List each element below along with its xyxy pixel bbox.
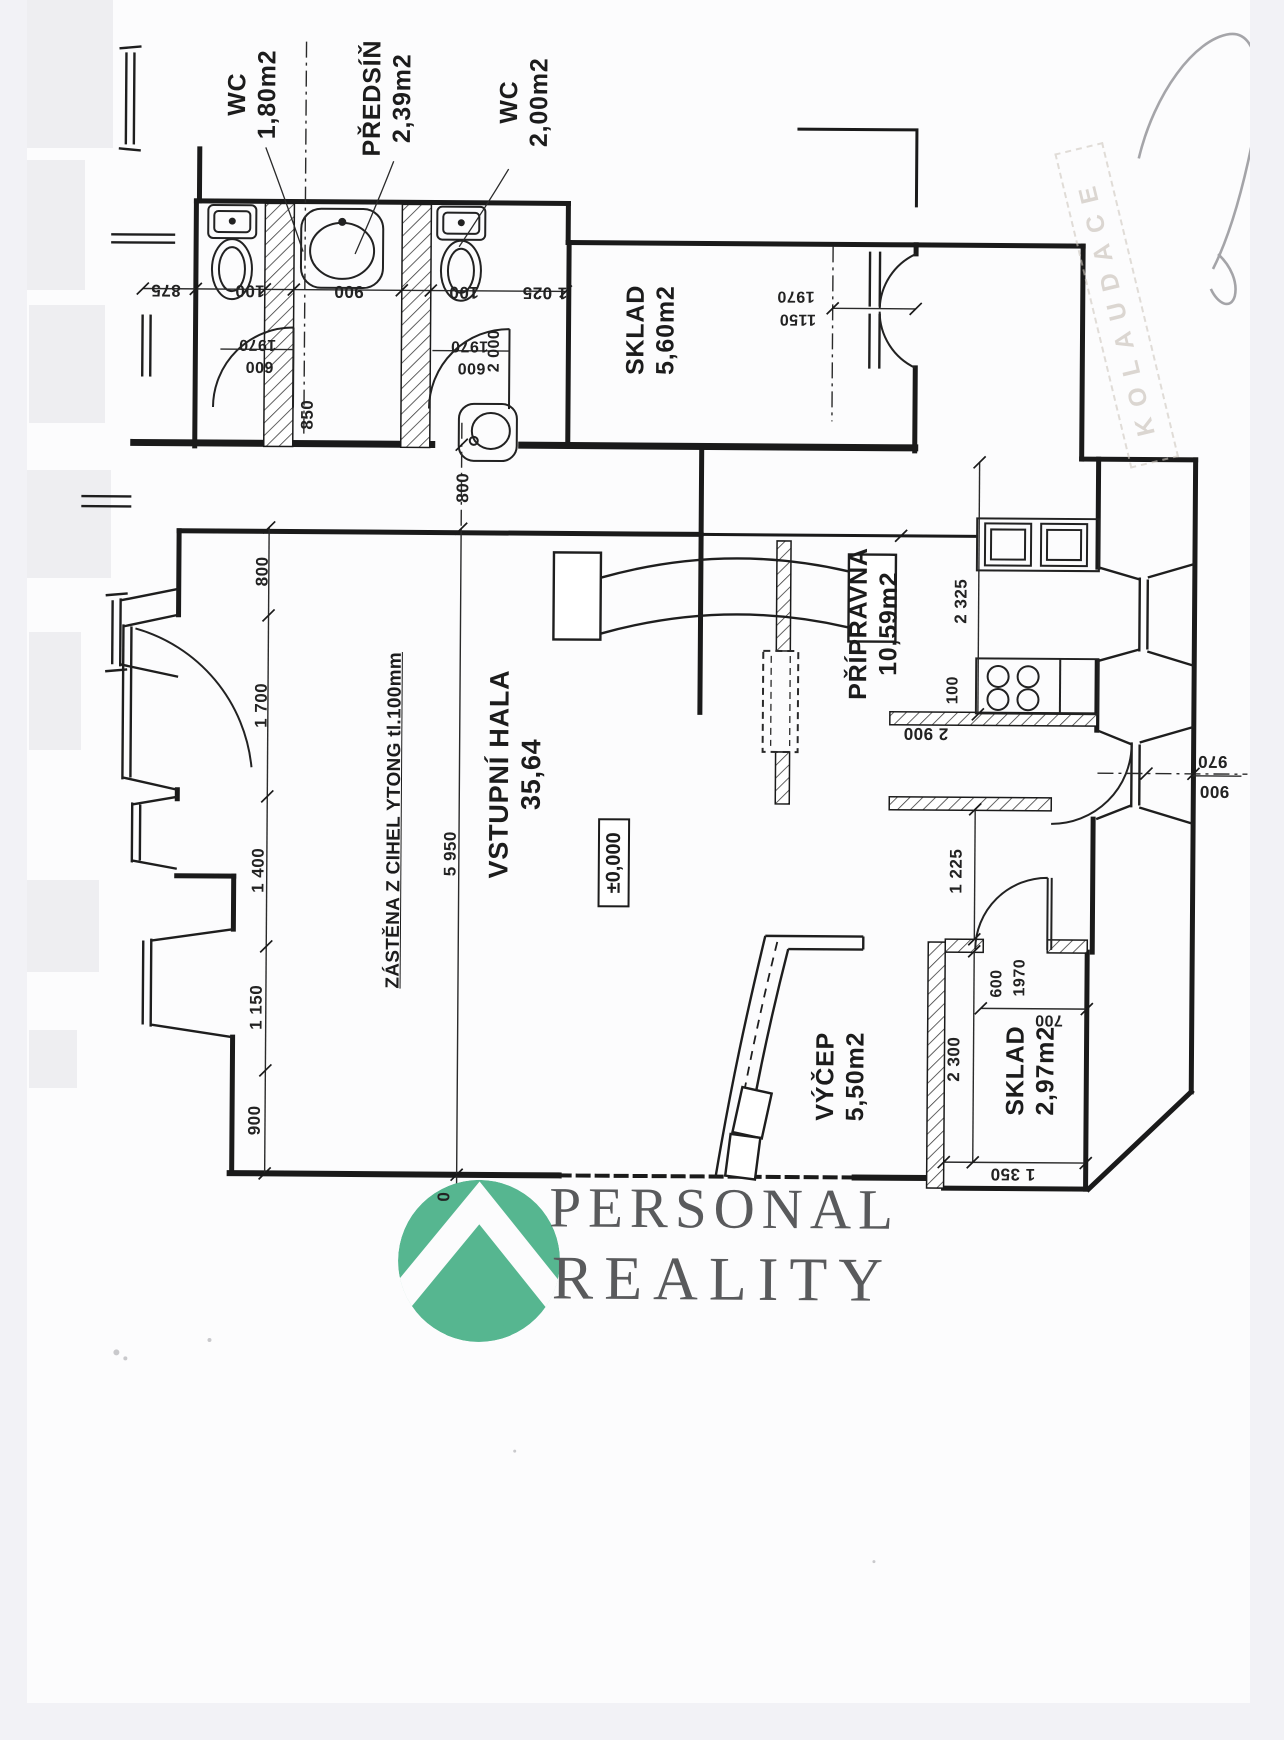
dim-1025: 1 025 bbox=[522, 282, 567, 303]
dim-2300: 2 300 bbox=[944, 1037, 965, 1082]
dim-wc1-1970: 1970 bbox=[239, 335, 277, 354]
dim-100b: 100 bbox=[449, 281, 479, 302]
room-label-vycep: VÝČEP5,50m2 bbox=[810, 1031, 871, 1121]
dim-800: 800 bbox=[253, 556, 274, 586]
dim-600b: 600 bbox=[987, 969, 1006, 997]
dim-850: 850 bbox=[298, 400, 319, 430]
dim-700: 700 bbox=[1035, 1010, 1063, 1029]
room-label-pripravna: PŘÍPRAVNA10,59m2 bbox=[843, 547, 904, 700]
dim-wc2-600: 600 bbox=[457, 358, 485, 377]
dim-970: 970 bbox=[1198, 751, 1228, 772]
dim-2000: 2 000 bbox=[485, 330, 504, 373]
dim-800-corridor: 800 bbox=[453, 473, 474, 503]
room-label-sklad2: SKLAD2,97m2 bbox=[1000, 1025, 1061, 1116]
dim-1700: 1 700 bbox=[252, 683, 273, 728]
dim-900b: 900 bbox=[245, 1105, 266, 1135]
room-label-wc1: WC1,80m2 bbox=[222, 49, 283, 139]
room-label-predsin: PŘEDSÍŇ2,39m2 bbox=[357, 40, 418, 157]
dim-dd-1150: 1150 bbox=[779, 309, 816, 328]
dim-100a: 100 bbox=[235, 280, 265, 301]
viewer-gutter-left bbox=[0, 0, 27, 1736]
brand-text-reality: REALITY bbox=[552, 1243, 895, 1316]
screen: { "window": { "background": "#f2f2f6", "… bbox=[0, 0, 1284, 1736]
dim-2900: 2 900 bbox=[903, 723, 948, 744]
dim-5950: 5 950 bbox=[441, 831, 462, 876]
dim-1970c: 1970 bbox=[1010, 959, 1029, 997]
dim-1350: 1 350 bbox=[990, 1163, 1035, 1184]
dim-1150: 1 150 bbox=[246, 985, 267, 1030]
dim-wc1-600: 600 bbox=[245, 357, 273, 376]
dim-wc2-1970: 1970 bbox=[451, 336, 489, 355]
viewer-gutter-right bbox=[1250, 0, 1284, 1736]
dim-0: 0 bbox=[434, 1192, 454, 1202]
room-label-wc2: WC2,00m2 bbox=[494, 57, 555, 147]
dim-100c: 100 bbox=[943, 676, 962, 704]
dim-875: 875 bbox=[151, 279, 181, 300]
dim-900c: 900 bbox=[1199, 781, 1229, 802]
level-mark: ±0,000 bbox=[602, 818, 627, 907]
floorplan-area: WC1,80m2 PŘEDSÍŇ2,39m2 WC2,00m2 SKLAD5,6… bbox=[0, 0, 1284, 1740]
dim-1400: 1 400 bbox=[248, 848, 269, 893]
brand-text-personal: PERSONAL bbox=[549, 1175, 900, 1242]
dim-1225: 1 225 bbox=[946, 849, 967, 894]
partition-note: ZÁSTĚNA Z CIHEL YTONG tl.100mm bbox=[383, 652, 408, 989]
dim-900a: 900 bbox=[334, 281, 364, 302]
viewer-gutter-bottom bbox=[0, 1703, 1284, 1736]
room-label-sklad1: SKLAD5,60m2 bbox=[620, 285, 681, 376]
dim-dd-1970: 1970 bbox=[777, 286, 815, 305]
room-label-hala: VSTUPNÍ HALA35,64 bbox=[482, 669, 548, 879]
dim-2325: 2 325 bbox=[951, 579, 972, 624]
personal-reality-logo-mark bbox=[387, 1179, 571, 1409]
